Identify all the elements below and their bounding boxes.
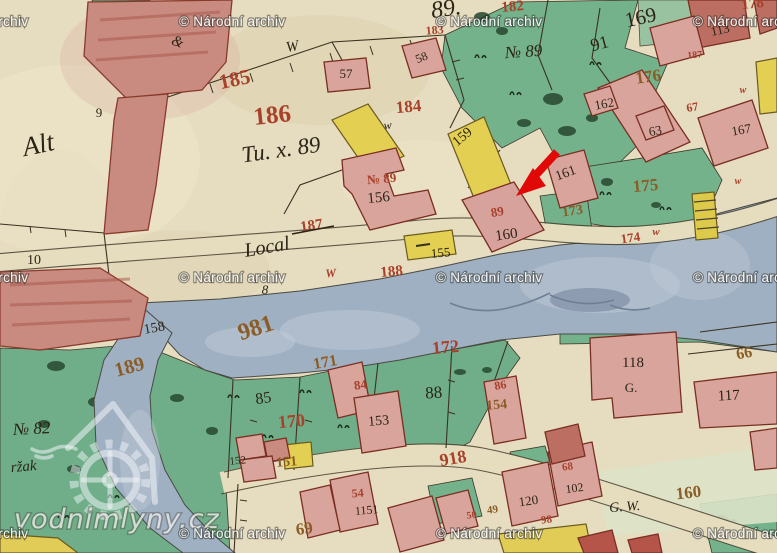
archive-watermark: © Národní archiv	[436, 270, 542, 285]
building	[545, 424, 585, 464]
parcel-label: 186	[252, 100, 292, 131]
parcel-label: 54	[351, 486, 364, 501]
parcel-label: 160	[675, 482, 702, 504]
parcel-label: № 82	[12, 418, 52, 439]
parcel-label: 151	[276, 454, 298, 471]
parcel-label: 173	[561, 203, 584, 221]
parcel-label: 187	[299, 216, 324, 235]
parcel-label: 68	[561, 460, 574, 473]
parcel-label: 153	[368, 413, 390, 430]
parcel-label: 85	[254, 389, 272, 408]
parcel-label: w	[735, 176, 742, 187]
archive-watermark: © Národní archiv	[693, 270, 777, 285]
parcel-label: 160	[494, 226, 519, 245]
parcel-label: 152	[229, 454, 246, 467]
wooden-building	[756, 58, 777, 114]
parcel-label: 84	[353, 376, 368, 393]
archive-watermark: © Národní archiv	[179, 14, 285, 29]
parcel-label: № 89	[366, 170, 397, 188]
parcel-label: 50	[466, 509, 477, 521]
parcel-label: ržak	[10, 458, 37, 476]
parcel-label: 88	[425, 383, 443, 403]
parcel-label: 57	[340, 66, 354, 81]
parcel-label: w	[740, 85, 747, 96]
parcel-label: 69	[294, 518, 313, 539]
parcel-label: № 89	[503, 41, 543, 63]
parcel-label: 117	[717, 387, 740, 404]
parcel-label: 102	[565, 480, 585, 496]
parcel-label: G.	[625, 380, 638, 395]
bridge	[692, 192, 719, 240]
parcel-label: 120	[518, 492, 539, 510]
archive-watermark: © Národní archiv	[693, 526, 777, 541]
parcel-label: 155	[430, 244, 451, 261]
parcel-label: 154	[486, 397, 508, 414]
parcel-label: 172	[431, 336, 460, 358]
archive-watermark: © Národní archiv	[0, 526, 28, 541]
map-canvas[interactable]: & 89. 169 91 113 182 183 № 89 185 186 18…	[0, 0, 777, 553]
archive-watermark: © Národní archiv	[693, 14, 777, 29]
archive-watermark: © Národní archiv	[436, 526, 542, 541]
parcel-label: 1151	[354, 502, 379, 518]
archive-watermark: © Národní archiv	[436, 14, 542, 29]
archive-watermark: © Národní archiv	[0, 270, 28, 285]
parcel-label: 63	[648, 122, 663, 139]
parcel-label: 49	[486, 503, 499, 516]
parcel-label: 176	[634, 65, 662, 87]
parcel-label: w	[383, 118, 392, 133]
parcel-label: 184	[395, 96, 423, 117]
parcel-label: 187	[687, 49, 703, 61]
parcel-label: 175	[632, 175, 659, 196]
parcel-label: 174	[620, 229, 642, 247]
archive-watermark: © Národní archiv	[179, 526, 285, 541]
parcel-label: 98	[540, 513, 553, 526]
archive-watermark: © Národní archiv	[0, 14, 28, 29]
parcel-label: 10	[27, 253, 41, 268]
parcel-label: 9	[96, 105, 103, 120]
building	[750, 428, 777, 470]
parcel-label: 86	[493, 377, 507, 393]
map-viewport: & 89. 169 91 113 182 183 № 89 185 186 18…	[0, 0, 777, 553]
parcel-label: w	[652, 226, 660, 238]
parcel-label: 156	[367, 189, 391, 207]
parcel-label: G. W.	[609, 499, 641, 516]
archive-watermark: © Národní archiv	[179, 270, 285, 285]
parcel-label: 118	[622, 355, 644, 371]
parcel-label: 178	[741, 0, 765, 13]
parcel-label: 67	[685, 99, 699, 115]
parcel-label: 188	[380, 263, 404, 281]
parcel-label: 66	[735, 344, 754, 364]
parcel-label: 170	[277, 410, 306, 432]
